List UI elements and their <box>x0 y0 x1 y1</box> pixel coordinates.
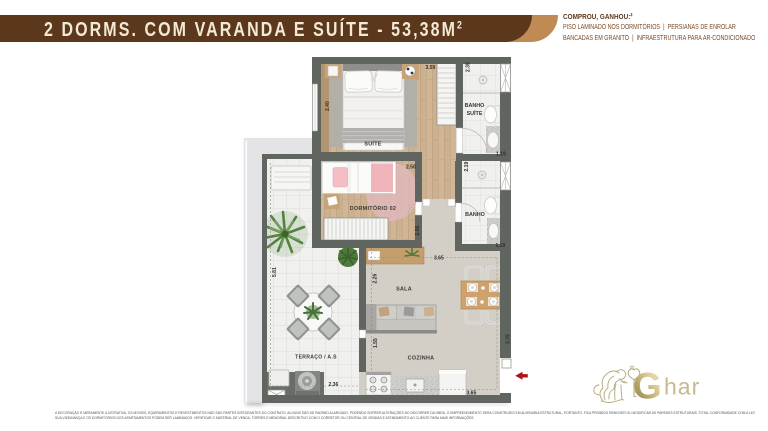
svg-text:BANHO: BANHO <box>465 212 485 218</box>
svg-text:2.06: 2.06 <box>415 226 421 236</box>
svg-text:1.55: 1.55 <box>373 338 379 348</box>
svg-text:SALA: SALA <box>396 287 412 293</box>
svg-text:1.19: 1.19 <box>496 152 506 158</box>
svg-text:2.40: 2.40 <box>325 101 331 111</box>
svg-text:har: har <box>664 374 700 400</box>
svg-text:2.35: 2.35 <box>466 62 472 72</box>
svg-text:TERRAÇO / A.S: TERRAÇO / A.S <box>295 355 337 361</box>
svg-text:SUÍTE: SUÍTE <box>467 109 483 117</box>
svg-text:G: G <box>633 366 662 407</box>
svg-text:2.26: 2.26 <box>373 274 379 284</box>
svg-text:COZINHA: COZINHA <box>408 356 435 362</box>
svg-text:3.59: 3.59 <box>426 65 436 71</box>
svg-text:3.65: 3.65 <box>467 390 477 396</box>
svg-text:DORMITÓRIO 02: DORMITÓRIO 02 <box>350 204 396 212</box>
svg-text:3.75: 3.75 <box>505 334 511 344</box>
svg-text:1.19: 1.19 <box>496 243 506 249</box>
svg-text:2.50: 2.50 <box>406 164 416 170</box>
svg-text:2.36: 2.36 <box>329 382 339 388</box>
svg-text:3.65: 3.65 <box>434 256 444 262</box>
svg-text:SUÍTE: SUÍTE <box>364 140 381 148</box>
svg-text:2.19: 2.19 <box>464 162 470 172</box>
svg-text:5.81: 5.81 <box>272 267 278 277</box>
svg-text:BANHO: BANHO <box>465 103 485 109</box>
